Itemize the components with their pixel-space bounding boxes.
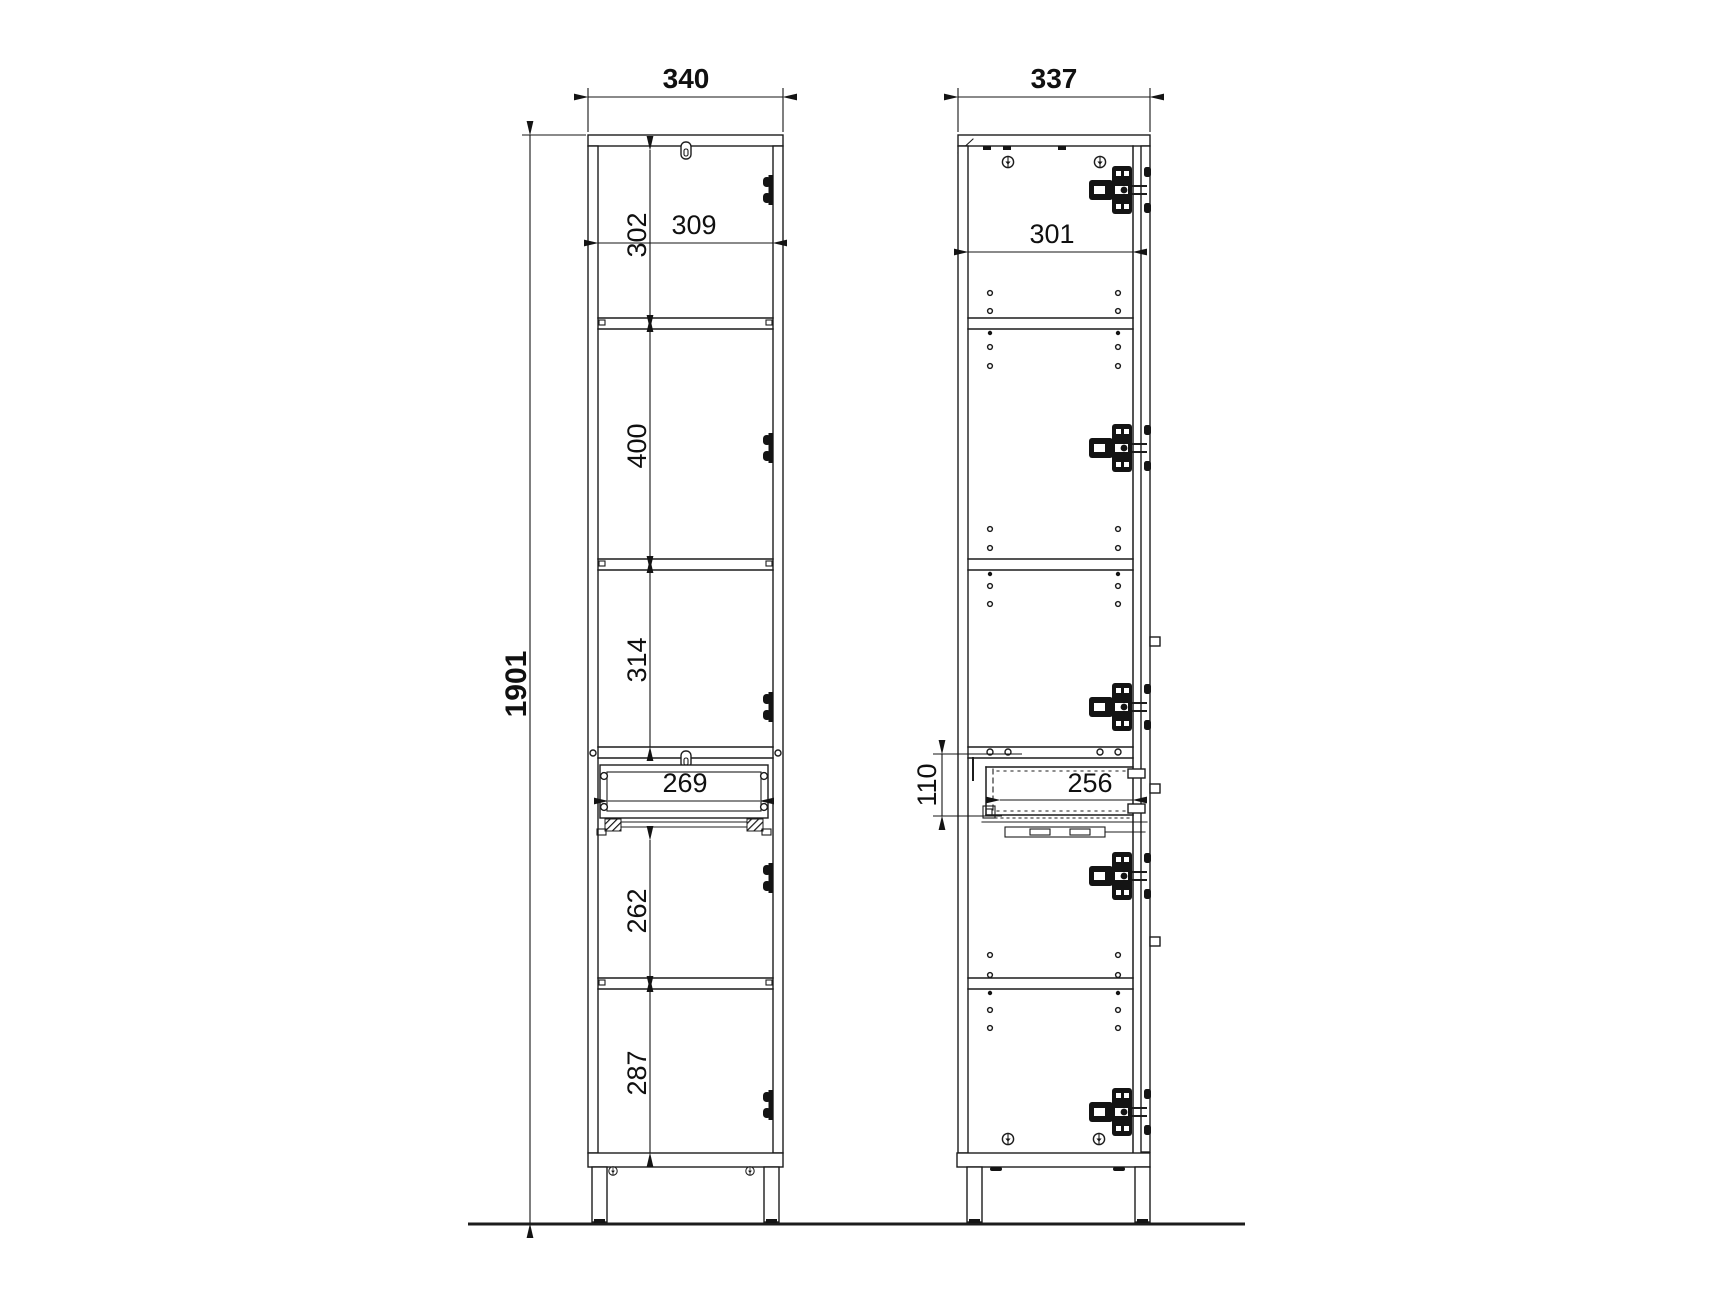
base-panel — [588, 1153, 783, 1167]
drawer-slide — [982, 818, 1147, 837]
hinge-plate-icon — [763, 175, 773, 205]
dim-label: 256 — [1067, 768, 1112, 798]
dim-label: 302 — [622, 212, 652, 257]
dim-interior-depth: 301 — [968, 219, 1133, 252]
cam-lock-icon — [1093, 1133, 1104, 1144]
left-side-panel — [588, 146, 598, 1153]
drawer-slide — [597, 818, 771, 835]
back-panel — [958, 146, 968, 1153]
shelf-1 — [598, 318, 773, 329]
door-panel-edge — [1141, 146, 1150, 1152]
dim-overall-depth: 337 — [958, 63, 1150, 132]
dim-drawer-depth: 256 — [1000, 768, 1133, 800]
technical-drawing-page: 340 1901 302 309 400 314 269 — [0, 0, 1728, 1296]
cam-lock-icon — [1002, 156, 1013, 167]
dim-overall-height: 1901 — [500, 135, 586, 1224]
base-panel — [957, 1153, 1150, 1167]
hinge-plate-icon — [763, 1090, 773, 1120]
dim-bottom-compartment: 287 — [622, 990, 652, 1153]
dim-fourth-compartment: 262 — [622, 840, 652, 978]
dim-label: 301 — [1029, 219, 1074, 249]
top-panel — [958, 135, 1150, 146]
cam-lock-icon — [746, 1167, 754, 1175]
dim-label: 400 — [622, 423, 652, 468]
cabinet-dimension-diagram: 340 1901 302 309 400 314 269 — [0, 0, 1728, 1296]
dim-label: 337 — [1031, 63, 1078, 94]
dim-label: 314 — [622, 637, 652, 682]
side-view: 337 301 110 256 — [912, 63, 1160, 1223]
dim-label: 309 — [671, 210, 716, 240]
hinge-plate-icon — [763, 863, 773, 893]
dim-top-compartment: 302 — [622, 150, 652, 318]
dim-label: 1901 — [500, 651, 533, 718]
cam-lock-icon — [609, 1167, 617, 1175]
hinge-plate-icon — [763, 433, 773, 463]
cam-lock-icon — [1094, 156, 1105, 167]
legs — [592, 1167, 779, 1223]
hinge-plate-icon — [763, 692, 773, 722]
handle-tabs — [1150, 637, 1160, 946]
right-side-panel — [773, 146, 783, 1153]
dim-label: 110 — [912, 763, 942, 806]
legs — [967, 1167, 1150, 1223]
shelf-pin-holes — [988, 291, 1121, 1031]
dim-label: 269 — [662, 768, 707, 798]
dim-overall-width: 340 — [588, 63, 783, 132]
dim-label: 287 — [622, 1050, 652, 1095]
shelf-3 — [598, 978, 773, 989]
drawer-side — [983, 767, 1145, 818]
shelf-edges — [968, 318, 1133, 995]
dim-third-compartment: 314 — [622, 570, 652, 747]
keyhole-fitting-icon — [681, 142, 691, 159]
front-view: 340 1901 302 309 400 314 269 — [500, 63, 783, 1224]
cam-lock-icon — [1002, 1133, 1013, 1144]
dim-label: 340 — [663, 63, 710, 94]
dim-second-compartment: 400 — [622, 329, 652, 559]
shelf-2 — [598, 559, 773, 570]
dim-label: 262 — [622, 888, 652, 933]
